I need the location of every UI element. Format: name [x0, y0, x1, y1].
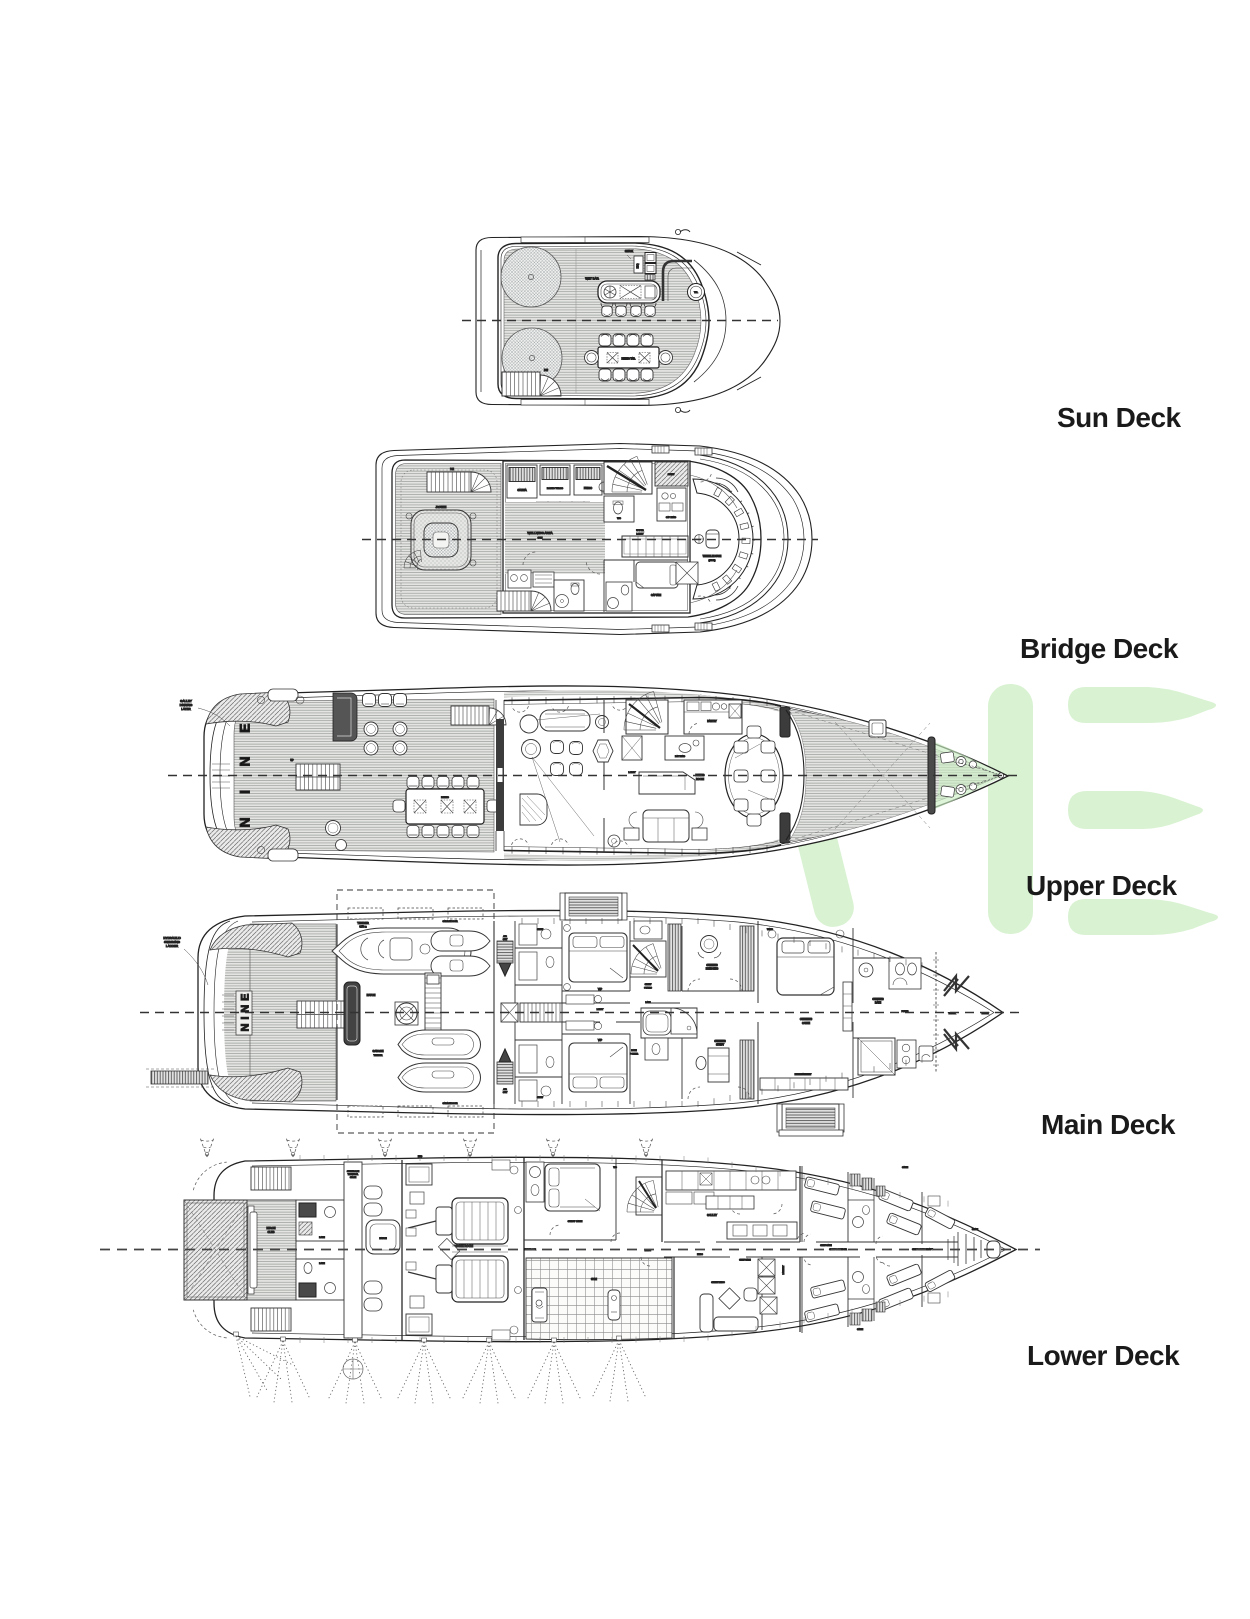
svg-text:SAUNA: SAUNA	[517, 488, 526, 492]
svg-text:WELLNESS AREA: WELLNESS AREA	[527, 531, 552, 535]
svg-text:WET BAR: WET BAR	[585, 277, 599, 281]
svg-text:CLUB: CLUB	[268, 1230, 275, 1234]
svg-text:POWER: POWER	[630, 1054, 639, 1056]
svg-text:OWNER'S: OWNER'S	[800, 1017, 812, 1021]
svg-text:GUEST CABIN: GUEST CABIN	[568, 1220, 583, 1223]
svg-text:BAGNO TURCO: BAGNO TURCO	[547, 487, 564, 490]
svg-text:TRUNK: TRUNK	[981, 1013, 989, 1015]
svg-text:CABIN: CABIN	[857, 1328, 864, 1331]
svg-text:HATCH: HATCH	[379, 1237, 387, 1240]
svg-text:OUT: OUT	[503, 1092, 508, 1094]
svg-text:CREW: CREW	[668, 474, 676, 476]
svg-text:LOBBY: LOBBY	[597, 1009, 604, 1011]
svg-text:BATH: BATH	[319, 1262, 325, 1265]
svg-text:ENG: ENG	[418, 1156, 423, 1158]
svg-text:PANTRY: PANTRY	[707, 720, 717, 723]
svg-text:CREW: CREW	[537, 1097, 543, 1099]
svg-text:TRUNK: TRUNK	[948, 1013, 956, 1015]
svg-text:TENDER: TENDER	[374, 1055, 383, 1057]
svg-text:OUT: OUT	[503, 939, 508, 941]
svg-text:DINING TAB.: DINING TAB.	[621, 358, 635, 361]
svg-text:ENTERTAINMENT: ENTERTAINMENT	[795, 1073, 813, 1076]
svg-text:WARD: WARD	[767, 928, 774, 931]
svg-text:SNACK: SNACK	[625, 250, 634, 253]
svg-text:DINING: DINING	[441, 797, 449, 799]
svg-text:ROOM: ROOM	[696, 777, 704, 781]
svg-text:CREW CABIN: CREW CABIN	[820, 1244, 832, 1247]
svg-text:FRIGO: FRIGO	[584, 486, 592, 490]
svg-text:TENDER: TENDER	[357, 921, 369, 925]
svg-text:WC: WC	[613, 1167, 617, 1169]
svg-text:CREW: CREW	[537, 929, 543, 931]
svg-text:HATCH: HATCH	[367, 993, 376, 997]
svg-text:LOBBY: LOBBY	[636, 534, 644, 536]
svg-text:SPACE: SPACE	[350, 1176, 357, 1179]
svg-text:CAP HEAD: CAP HEAD	[666, 516, 677, 519]
svg-text:STOREROOM: STOREROOM	[347, 1171, 360, 1173]
svg-text:UPPER: UPPER	[636, 530, 644, 532]
svg-text:BBQ: BBQ	[637, 263, 640, 268]
svg-text:GYM: GYM	[538, 538, 543, 540]
svg-text:BATH: BATH	[645, 1001, 651, 1004]
svg-text:STUDY: STUDY	[716, 1044, 725, 1047]
svg-text:MESS: MESS	[697, 1254, 703, 1256]
svg-text:LATER: LATER	[181, 707, 191, 711]
svg-text:CAPT: CAPT	[927, 1248, 933, 1251]
svg-text:VIP: VIP	[598, 987, 602, 991]
svg-text:AIR: AIR	[503, 935, 507, 938]
svg-text:CREW: CREW	[645, 984, 653, 986]
svg-text:LADDER: LADDER	[166, 944, 179, 948]
svg-text:CREW MESS: CREW MESS	[711, 1282, 725, 1284]
svg-text:DN: DN	[544, 368, 548, 372]
svg-text:CAPTAIN: CAPTAIN	[651, 594, 661, 597]
svg-text:LOBBY: LOBBY	[628, 772, 636, 774]
svg-text:UP: UP	[290, 759, 294, 762]
svg-text:WHEELHOUSE: WHEELHOUSE	[703, 554, 722, 558]
svg-text:BATH: BATH	[875, 1002, 881, 1005]
svg-text:CABIN: CABIN	[802, 1021, 810, 1025]
svg-text:DAY HEAD: DAY HEAD	[675, 755, 686, 758]
svg-text:(HELM): (HELM)	[709, 560, 716, 562]
svg-text:AIR: AIR	[503, 1088, 507, 1091]
svg-text:CREW CABIN: CREW CABIN	[739, 1259, 751, 1262]
svg-text:TECHNICAL: TECHNICAL	[348, 1173, 359, 1176]
svg-text:GARAGE DOOR: GARAGE DOOR	[442, 920, 458, 923]
svg-text:GARAGE DOOR: GARAGE DOOR	[442, 1102, 458, 1105]
svg-text:WC: WC	[617, 518, 621, 520]
svg-text:GARAGE: GARAGE	[372, 1049, 383, 1053]
svg-text:VIP: VIP	[598, 1038, 602, 1042]
svg-text:BEACH: BEACH	[267, 1226, 276, 1230]
svg-text:JACUZZI: JACUZZI	[436, 505, 447, 509]
svg-text:GALLEY: GALLEY	[707, 1213, 717, 1217]
svg-text:MAIN: MAIN	[631, 1049, 637, 1052]
svg-text:LAUNDRY: LAUNDRY	[782, 1265, 785, 1275]
svg-text:STAIRS: STAIRS	[644, 987, 652, 990]
svg-text:BATH: BATH	[319, 1236, 325, 1239]
svg-text:DN: DN	[450, 467, 454, 471]
svg-text:6.50 m: 6.50 m	[359, 926, 366, 929]
svg-text:CABIN: CABIN	[902, 1166, 909, 1169]
svg-text:CHAIN: CHAIN	[972, 1228, 979, 1231]
svg-text:DRESSING: DRESSING	[706, 968, 719, 971]
svg-text:GYM: GYM	[591, 1277, 597, 1281]
